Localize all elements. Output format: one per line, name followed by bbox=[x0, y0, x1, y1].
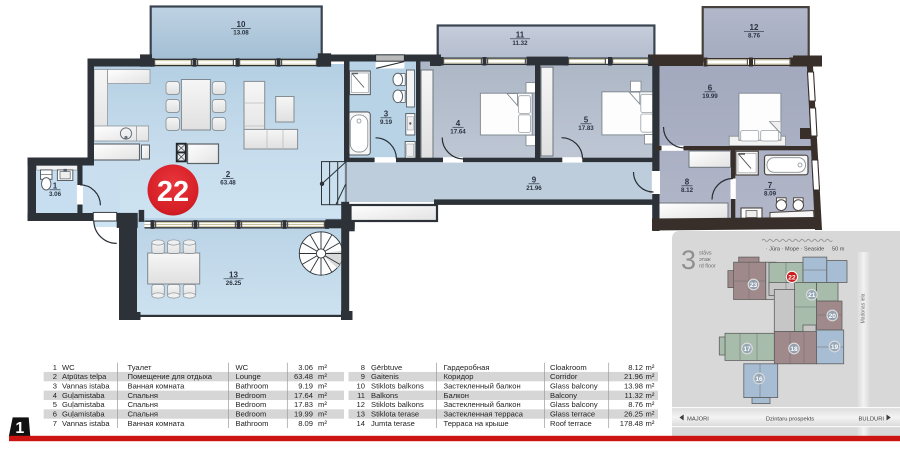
svg-text:13.98: 13.98 bbox=[624, 382, 643, 391]
svg-text:Balkons: Balkons bbox=[371, 391, 398, 400]
svg-text:Lounge: Lounge bbox=[236, 372, 261, 381]
svg-text:Stiklots balkons: Stiklots balkons bbox=[371, 382, 424, 391]
svg-text:8.12: 8.12 bbox=[628, 363, 643, 372]
svg-text:Madonas iela: Madonas iela bbox=[861, 293, 867, 323]
svg-text:22: 22 bbox=[788, 274, 796, 281]
svg-text:63.48: 63.48 bbox=[294, 372, 313, 381]
svg-text:11.32: 11.32 bbox=[512, 40, 528, 47]
svg-text:Vannas istaba: Vannas istaba bbox=[62, 419, 110, 428]
svg-text:3: 3 bbox=[681, 245, 696, 275]
svg-text:14: 14 bbox=[357, 419, 365, 428]
svg-text:11: 11 bbox=[516, 31, 525, 40]
svg-text:9.19: 9.19 bbox=[298, 382, 313, 391]
svg-text:Corridor: Corridor bbox=[550, 372, 578, 381]
svg-text:11: 11 bbox=[357, 391, 365, 400]
svg-text:Застекленный балкон: Застекленный балкон bbox=[444, 382, 521, 391]
svg-text:63.48: 63.48 bbox=[220, 180, 236, 187]
svg-text:Застекленный балкон: Застекленный балкон bbox=[444, 400, 521, 409]
svg-text:17.83: 17.83 bbox=[578, 125, 594, 132]
svg-text:23: 23 bbox=[750, 282, 758, 289]
svg-text:8.09: 8.09 bbox=[764, 191, 777, 198]
svg-text:9: 9 bbox=[532, 176, 537, 185]
svg-text:21: 21 bbox=[808, 292, 816, 299]
svg-text:4: 4 bbox=[53, 391, 57, 400]
svg-text:Спальня: Спальня bbox=[128, 391, 159, 400]
svg-text:Балкон: Балкон bbox=[444, 391, 469, 400]
svg-text:Glass terrace: Glass terrace bbox=[550, 410, 595, 419]
svg-text:Guļamistaba: Guļamistaba bbox=[62, 410, 105, 419]
svg-text:Терраса на крыше: Терраса на крыше bbox=[444, 419, 509, 428]
svg-text:rd floor: rd floor bbox=[699, 264, 716, 270]
svg-text:16: 16 bbox=[755, 376, 763, 383]
svg-text:17.83: 17.83 bbox=[294, 400, 313, 409]
svg-text:m²: m² bbox=[646, 372, 655, 381]
svg-text:22: 22 bbox=[157, 176, 189, 208]
svg-text:7: 7 bbox=[53, 419, 57, 428]
svg-text:Glass balcony: Glass balcony bbox=[550, 400, 598, 409]
svg-text:m²: m² bbox=[318, 382, 327, 391]
svg-text:19.99: 19.99 bbox=[294, 410, 313, 419]
svg-text:3: 3 bbox=[384, 110, 389, 119]
svg-text:7: 7 bbox=[768, 181, 773, 190]
svg-text:6: 6 bbox=[53, 410, 57, 419]
svg-text:8.12: 8.12 bbox=[681, 187, 694, 194]
svg-text:17: 17 bbox=[743, 346, 751, 353]
svg-text:m²: m² bbox=[646, 410, 655, 419]
svg-text:WC: WC bbox=[62, 363, 75, 372]
svg-text:13: 13 bbox=[229, 271, 238, 280]
svg-text:178.48: 178.48 bbox=[620, 419, 643, 428]
svg-text:Bedroom: Bedroom bbox=[236, 400, 267, 409]
svg-text:9: 9 bbox=[361, 372, 365, 381]
svg-text:stāvs: stāvs bbox=[699, 251, 712, 257]
svg-text:m²: m² bbox=[646, 400, 655, 409]
svg-text:Glass balcony: Glass balcony bbox=[550, 382, 598, 391]
svg-text:8: 8 bbox=[361, 363, 365, 372]
svg-text:BULDURI: BULDURI bbox=[859, 416, 885, 422]
svg-text:m²: m² bbox=[318, 400, 327, 409]
svg-text:17.64: 17.64 bbox=[294, 391, 313, 400]
svg-text:Bathroom: Bathroom bbox=[236, 419, 269, 428]
svg-text:3: 3 bbox=[53, 382, 57, 391]
svg-text:Stiklota terase: Stiklota terase bbox=[371, 410, 419, 419]
svg-text:11.32: 11.32 bbox=[625, 391, 643, 400]
svg-text:WC: WC bbox=[236, 363, 249, 372]
svg-text:20: 20 bbox=[829, 313, 837, 320]
svg-text:Коридор: Коридор bbox=[444, 372, 474, 381]
svg-text:m²: m² bbox=[646, 391, 655, 400]
svg-text:Ванная комната: Ванная комната bbox=[128, 419, 186, 428]
svg-text:26.25: 26.25 bbox=[624, 410, 643, 419]
svg-text:Vannas istaba: Vannas istaba bbox=[62, 382, 110, 391]
svg-text:Спальня: Спальня bbox=[128, 400, 159, 409]
svg-text:Stiklots balkons: Stiklots balkons bbox=[371, 400, 424, 409]
svg-text:3.06: 3.06 bbox=[298, 363, 313, 372]
svg-text:Guļamistaba: Guļamistaba bbox=[62, 391, 105, 400]
svg-text:8.09: 8.09 bbox=[298, 419, 313, 428]
svg-text:2: 2 bbox=[53, 372, 57, 381]
svg-text:Ванная комната: Ванная комната bbox=[128, 382, 186, 391]
svg-text:Gaitenis: Gaitenis bbox=[371, 372, 399, 381]
svg-text:26.25: 26.25 bbox=[226, 280, 242, 287]
svg-text:9.19: 9.19 bbox=[380, 119, 393, 126]
svg-text:21.96: 21.96 bbox=[624, 372, 643, 381]
svg-text:13.08: 13.08 bbox=[233, 30, 249, 37]
svg-text:6: 6 bbox=[708, 84, 713, 93]
svg-text:1: 1 bbox=[53, 363, 57, 372]
svg-text:Bathroom: Bathroom bbox=[236, 382, 269, 391]
svg-text:5: 5 bbox=[584, 116, 589, 125]
svg-text:13: 13 bbox=[357, 410, 365, 419]
svg-text:MAJORI: MAJORI bbox=[687, 416, 709, 422]
svg-text:Застекленная терраса: Застекленная терраса bbox=[444, 410, 524, 419]
svg-text:2: 2 bbox=[226, 170, 231, 179]
svg-text:Roof terrace: Roof terrace bbox=[550, 419, 592, 428]
svg-text:Спальня: Спальня bbox=[128, 410, 159, 419]
svg-text:17.64: 17.64 bbox=[450, 129, 466, 136]
svg-text:m²: m² bbox=[318, 419, 327, 428]
svg-text:Ģērbtuve: Ģērbtuve bbox=[371, 363, 402, 372]
svg-text:19: 19 bbox=[831, 344, 839, 351]
svg-text:18: 18 bbox=[790, 346, 798, 353]
svg-text:Помещение для отдыха: Помещение для отдыха bbox=[128, 372, 213, 381]
svg-text:8.76: 8.76 bbox=[748, 33, 761, 40]
svg-text:10: 10 bbox=[237, 20, 246, 29]
svg-text:m²: m² bbox=[318, 372, 327, 381]
svg-text:этаж: этаж bbox=[699, 257, 711, 263]
svg-text:1: 1 bbox=[15, 420, 24, 437]
svg-text:Atpūtas telpa: Atpūtas telpa bbox=[62, 372, 107, 381]
svg-text:8: 8 bbox=[685, 178, 690, 187]
svg-text:m²: m² bbox=[318, 410, 327, 419]
svg-text:m²: m² bbox=[318, 363, 327, 372]
svg-text:Jumta terase: Jumta terase bbox=[371, 419, 415, 428]
svg-text:21.96: 21.96 bbox=[526, 185, 542, 192]
svg-text:19.99: 19.99 bbox=[702, 93, 718, 100]
svg-text:5: 5 bbox=[53, 400, 57, 409]
svg-text:50 m: 50 m bbox=[832, 247, 845, 253]
svg-text:12: 12 bbox=[357, 400, 365, 409]
svg-text:Гардеробная: Гардеробная bbox=[444, 363, 490, 372]
svg-text:· Jūra · Море · Seaside: · Jūra · Море · Seaside bbox=[766, 247, 825, 253]
svg-text:12: 12 bbox=[750, 23, 759, 32]
svg-text:Cloakroom: Cloakroom bbox=[550, 363, 587, 372]
svg-text:Туалет: Туалет bbox=[128, 363, 153, 372]
svg-text:3.06: 3.06 bbox=[49, 191, 62, 198]
svg-text:Balcony: Balcony bbox=[550, 391, 577, 400]
svg-text:Bedroom: Bedroom bbox=[236, 391, 267, 400]
svg-text:4: 4 bbox=[456, 119, 461, 128]
svg-text:m²: m² bbox=[646, 363, 655, 372]
svg-text:Dzintaru prospekts: Dzintaru prospekts bbox=[766, 416, 814, 422]
svg-text:Bedroom: Bedroom bbox=[236, 410, 267, 419]
svg-text:m²: m² bbox=[646, 382, 655, 391]
svg-text:m²: m² bbox=[646, 419, 655, 428]
svg-text:1: 1 bbox=[53, 182, 58, 191]
svg-text:10: 10 bbox=[357, 382, 365, 391]
svg-text:m²: m² bbox=[318, 391, 327, 400]
svg-text:Guļamistaba: Guļamistaba bbox=[62, 400, 105, 409]
svg-text:8.76: 8.76 bbox=[628, 400, 643, 409]
